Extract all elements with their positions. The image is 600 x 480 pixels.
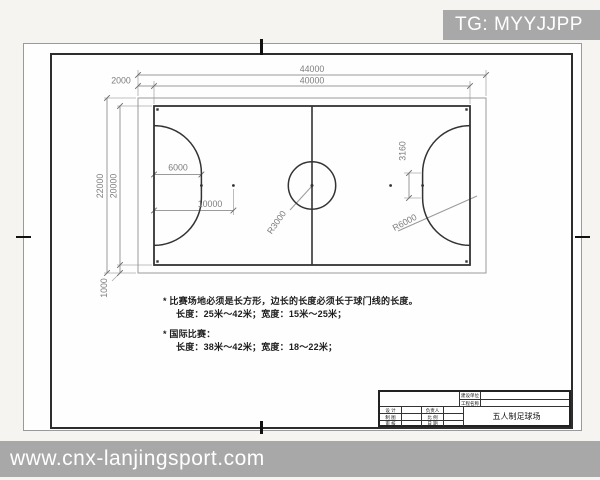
penalty-arc-radius-label: R6000	[391, 212, 419, 233]
left-penalty-mark-10m	[232, 184, 235, 187]
corner-mark	[465, 108, 467, 110]
dim-bottom-margin-label: 1000	[99, 278, 109, 298]
screenshot-root: TG: MYYJJPP www.cnx-lanjingsport.com	[0, 0, 600, 480]
right-penalty-arc	[423, 126, 470, 246]
scale-value-cell	[444, 414, 464, 421]
left-penalty-mark-6m	[200, 184, 203, 187]
draft-label-cell: 制 图	[380, 414, 402, 421]
review-label-cell: 审 核	[380, 421, 402, 426]
title-block-blank-cell	[380, 392, 460, 407]
date-value-cell	[444, 421, 464, 426]
dim-court-height-label: 20000	[109, 174, 119, 199]
lead-value-cell	[444, 407, 464, 414]
dim-total-width-label: 44000	[300, 64, 325, 74]
project-value-cell	[481, 400, 569, 407]
center-mark	[311, 184, 314, 187]
extension-lines	[104, 70, 486, 281]
corner-mark	[156, 108, 158, 110]
corner-mark	[465, 260, 467, 262]
dim-goal-segment-label: 3160	[398, 141, 408, 161]
draft-value-cell	[402, 414, 422, 421]
review-value-cell	[402, 421, 422, 426]
dim-penalty-6m-label: 6000	[168, 163, 188, 173]
owner-value-cell	[481, 392, 569, 400]
dim-side-margin-label: 2000	[111, 76, 131, 86]
note-international-header: * 国际比赛：	[163, 327, 215, 340]
drawing-title-cell: 五人制足球场	[464, 407, 569, 426]
note-rule-line2: 长度：25米～42米；宽度：15米～25米；	[176, 307, 346, 320]
corner-mark	[156, 260, 158, 262]
right-penalty-mark-6m	[421, 184, 424, 187]
note-international-dims: 长度：38米～42米；宽度：18～22米；	[176, 340, 337, 353]
dim-penalty-10m-label: 10000	[198, 199, 223, 209]
dim-court-width-label: 40000	[300, 76, 325, 86]
scale-label-cell: 比 例	[422, 414, 444, 421]
center-circle-radius-label: R3000	[265, 209, 288, 236]
note-rule-line1: * 比赛场地必须是长方形，边长的长度必须长于球门线的长度。	[163, 294, 418, 307]
right-penalty-mark-10m	[389, 184, 392, 187]
dim-total-height-label: 22000	[95, 174, 105, 199]
project-label-cell: 工程名称	[460, 400, 481, 407]
left-penalty-arc	[154, 126, 201, 246]
date-label-cell: 日 期	[422, 421, 444, 426]
owner-label-cell: 建设单位	[460, 392, 481, 400]
lead-label-cell: 负责人	[422, 407, 444, 414]
dimension-lines	[107, 75, 486, 273]
design-value-cell	[402, 407, 422, 414]
design-label-cell: 设 计	[380, 407, 402, 414]
title-block: 建设单位 工程名称 设 计 负责人 制 图 比 例 审 核 日 期 五人制足球场	[378, 390, 571, 427]
